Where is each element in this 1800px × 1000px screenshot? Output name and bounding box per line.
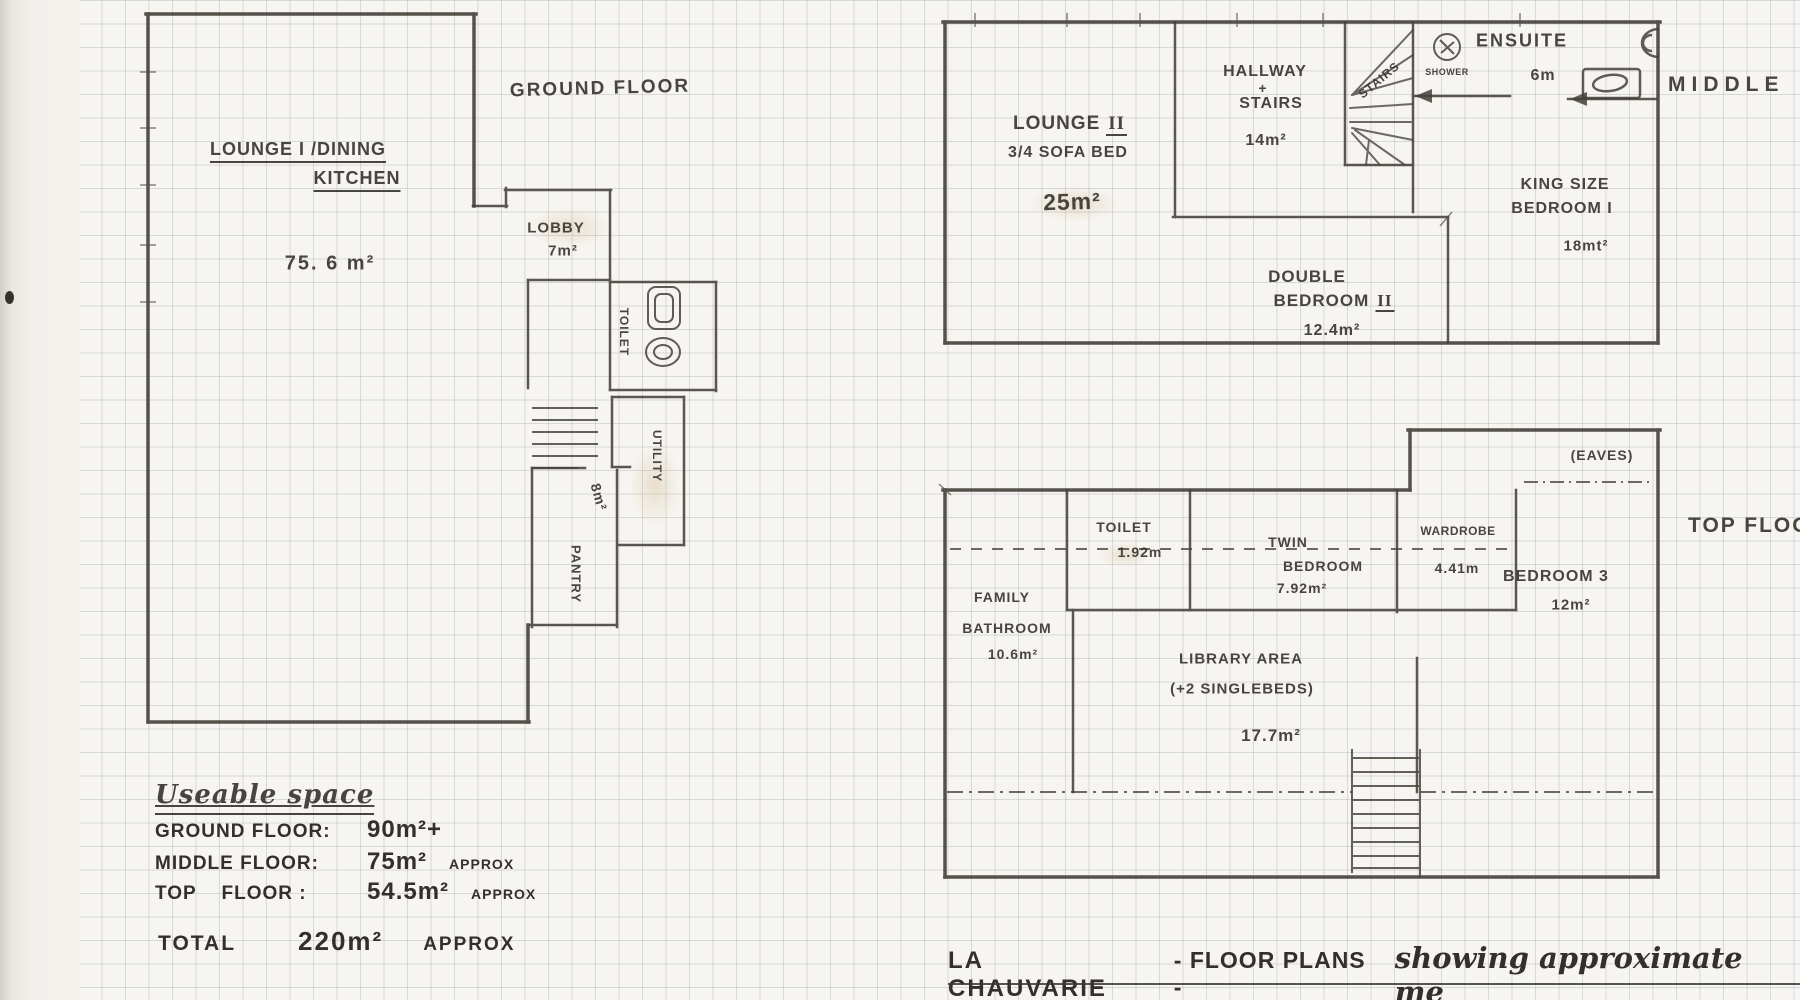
total-label: TOTAL: [158, 932, 236, 956]
label-eaves: (EAVES): [1571, 447, 1634, 463]
total-note: APPROX: [423, 934, 515, 956]
room-label-twin1: TWIN: [1268, 534, 1308, 550]
lounge2-name: LOUNGE: [1013, 113, 1100, 134]
area-top-toilet: 1.92m: [1118, 544, 1163, 560]
room-label-king2: BEDROOM I: [1511, 200, 1612, 218]
title-property-name: LA CHAUVARIE: [948, 947, 1150, 1000]
shower-icon: [1434, 34, 1460, 60]
sink-icon: [1583, 69, 1640, 98]
room-label-double2: BEDROOMII: [1273, 291, 1394, 311]
room-label-kitchen: KITCHEN: [314, 168, 401, 192]
eaves-dashed-lines: [947, 482, 1655, 792]
area-bedroom3: 12m²: [1551, 597, 1590, 614]
room-label-library1: LIBRARY AREA: [1179, 651, 1303, 668]
area-lounge1: 75. 6 m²: [285, 253, 375, 276]
ground-floor-outline: [146, 14, 529, 722]
summary-row-middle: MIDDLE FLOOR: 75m² APPROX: [155, 848, 514, 876]
ground-stairs-lines: [533, 408, 597, 468]
area-wardrobe: 4.41m: [1435, 560, 1480, 576]
title-floor-plans: - FLOOR PLANS -: [1174, 947, 1381, 1000]
summary-row-value: 90m²+: [367, 816, 442, 844]
area-hallway: 14m²: [1245, 132, 1286, 150]
top-floor-header: TOP FLOOR: [1688, 514, 1800, 538]
room-label-top-toilet: TOILET: [1096, 519, 1152, 535]
area-king: 18mt²: [1563, 238, 1608, 255]
room-label-wardrobe: WARDROBE: [1420, 524, 1495, 538]
middle-floor-header: MIDDLE: [1668, 73, 1785, 97]
summary-row-note: APPROX: [449, 856, 514, 872]
ground-toilet-fixture-icon: [646, 287, 680, 366]
room-label-lobby: LOBBY: [527, 220, 585, 237]
area-double: 12.4m²: [1304, 322, 1361, 340]
summary-heading: Useable space: [155, 780, 374, 815]
summary-row-label: TOP FLOOR :: [155, 883, 367, 905]
ground-floor-header: GROUND FLOOR: [510, 76, 691, 103]
double-numeral: II: [1375, 291, 1394, 312]
room-label-double1: DOUBLE: [1268, 267, 1346, 287]
summary-row-top: TOP FLOOR : 54.5m² APPROX: [155, 878, 536, 906]
room-label-hall-stairs: STAIRS: [1239, 95, 1302, 113]
floorplan-scan: GROUND FLOOR LOUNGE I /DINING KITCHEN 75…: [0, 0, 1800, 1000]
area-lounge2: 25m²: [1043, 188, 1101, 217]
top-stairs-lines: [1352, 750, 1420, 877]
label-plus: +: [1258, 80, 1267, 96]
room-label-lounge1: LOUNGE I /DINING: [210, 139, 386, 163]
room-label-utility: UTILITY: [650, 430, 664, 482]
title-subtitle: showing approximate me: [1395, 941, 1800, 1000]
label-shower: SHOWER: [1425, 67, 1469, 77]
room-label-family2: BATHROOM: [962, 620, 1051, 636]
summary-row-ground: GROUND FLOOR: 90m²+: [155, 816, 464, 844]
summary-row-value: 54.5m²: [367, 878, 449, 906]
area-library: 17.7m²: [1241, 726, 1301, 746]
label-sofa-bed: 3/4 SOFA BED: [1008, 144, 1128, 162]
room-label-library2: (+2 SINGLEBEDS): [1170, 681, 1314, 698]
summary-row-value: 75m²: [367, 848, 427, 876]
room-label-hallway: HALLWAY: [1223, 63, 1307, 81]
area-family: 10.6m²: [988, 646, 1038, 662]
total-value: 220m²: [298, 926, 383, 957]
room-label-twin2: BEDROOM: [1283, 558, 1363, 574]
room-label-bedroom3: BEDROOM 3: [1503, 568, 1609, 586]
room-label-ground-toilet: TOILET: [617, 308, 631, 356]
drawing-title: LA CHAUVARIE - FLOOR PLANS - showing app…: [948, 941, 1800, 1000]
middle-stairs-fan: [1350, 30, 1413, 165]
area-lobby: 7m²: [548, 243, 578, 260]
room-label-lounge2: LOUNGEII: [1013, 113, 1127, 135]
room-label-pantry: PANTRY: [569, 545, 584, 603]
door-arrow: [1570, 92, 1587, 106]
area-twin: 7.92m²: [1277, 580, 1327, 596]
summary-row-note: APPROX: [471, 886, 536, 902]
door-arrow: [1415, 89, 1432, 103]
room-label-king1: KING SIZE: [1520, 176, 1609, 194]
summary-row-label: GROUND FLOOR:: [155, 821, 367, 843]
summary-total-row: TOTAL 220m² APPROX: [158, 926, 515, 957]
area-ensuite: 6m: [1530, 67, 1555, 85]
summary-row-label: MIDDLE FLOOR:: [155, 853, 367, 875]
title-underline: [948, 983, 1800, 985]
double-name: BEDROOM: [1273, 291, 1369, 310]
room-label-ensuite: ENSUITE: [1476, 31, 1568, 52]
room-label-family1: FAMILY: [974, 589, 1030, 605]
lounge2-numeral: II: [1106, 113, 1127, 136]
